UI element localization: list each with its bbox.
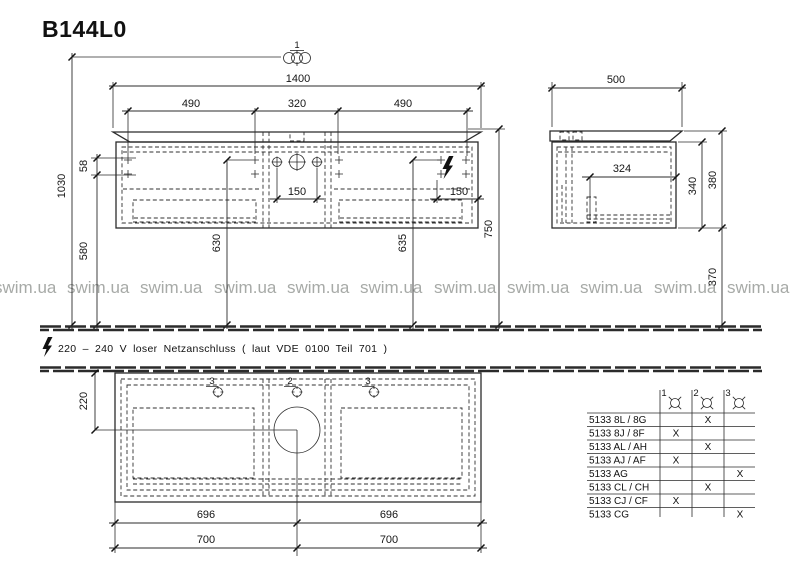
watermark: swim.ua	[214, 278, 277, 297]
callout-1: 1	[294, 40, 299, 51]
watermark-row: swim.ua swim.ua swim.ua swim.ua swim.ua …	[0, 278, 790, 297]
watermark: swim.ua	[580, 278, 643, 297]
dim-490-left: 490	[182, 98, 200, 110]
power-note: 220 – 240 V loser Netzanschluss ( laut V…	[43, 337, 388, 357]
dim-750: 750	[483, 220, 495, 238]
watermark: swim.ua	[0, 278, 57, 297]
countertop	[113, 132, 481, 142]
watermark: swim.ua	[434, 278, 497, 297]
mark: X	[673, 456, 680, 467]
dim-58: 58	[78, 160, 90, 172]
table-header: 1 2 3	[661, 388, 745, 409]
mark: X	[737, 469, 744, 480]
plan-outline	[115, 373, 481, 502]
watermark: swim.ua	[507, 278, 570, 297]
mark: X	[705, 442, 712, 453]
dim-700-right: 700	[380, 534, 398, 546]
dim-150-left: 150	[288, 186, 306, 198]
row-label: 5133 CG	[589, 510, 629, 521]
dim-150-right: 150	[450, 186, 468, 198]
dim-320: 320	[288, 98, 306, 110]
dim-635: 635	[397, 234, 409, 252]
dim-500: 500	[607, 74, 625, 86]
dim-696-right: 696	[380, 509, 398, 521]
row-label: 5133 AG	[589, 469, 628, 480]
col-1: 1	[661, 388, 666, 399]
power-note-text: 220 – 240 V loser Netzanschluss ( laut V…	[58, 343, 387, 355]
technical-drawing-page: swim.ua swim.ua swim.ua swim.ua swim.ua …	[0, 0, 800, 573]
mark: X	[737, 510, 744, 521]
row-label: 5133 CJ / CF	[589, 496, 648, 507]
callout-3-left: 3	[209, 376, 214, 387]
dim-1030: 1030	[56, 174, 68, 198]
wall-line-upper	[40, 327, 762, 331]
row-label: 5133 8L / 8G	[589, 415, 647, 426]
mark: X	[705, 415, 712, 426]
dim-630: 630	[211, 234, 223, 252]
watermark: swim.ua	[287, 278, 350, 297]
row-label: 5133 CL / CH	[589, 483, 649, 494]
lightning-icon	[443, 156, 454, 179]
mark: X	[673, 496, 680, 507]
watermark: swim.ua	[727, 278, 790, 297]
dim-220: 220	[78, 392, 90, 410]
callout-2: 2	[287, 376, 292, 387]
right-drawer-plan	[341, 408, 462, 478]
right-drawer	[339, 200, 462, 222]
dim-1400: 1400	[286, 73, 310, 85]
col-3: 3	[725, 388, 730, 399]
col-2: 2	[693, 388, 698, 399]
lightning-icon	[43, 337, 53, 357]
tap-holes	[272, 153, 323, 171]
dim-380: 380	[707, 171, 719, 189]
dim-696-left: 696	[197, 509, 215, 521]
left-drawer	[133, 200, 256, 222]
dim-490-right: 490	[394, 98, 412, 110]
callout-3-right: 3	[365, 376, 370, 387]
countertop-side	[550, 131, 682, 141]
dim-340: 340	[687, 177, 699, 195]
compatibility-table: 1 2 3 5133 8L / 8G X 5133 8J / 8F X 5133…	[587, 388, 755, 521]
center-cutout	[290, 132, 304, 141]
watermark: swim.ua	[67, 278, 130, 297]
row-label: 5133 AL / AH	[589, 442, 647, 453]
dim-700-left: 700	[197, 534, 215, 546]
wall-line-lower	[40, 368, 762, 372]
mark: X	[705, 483, 712, 494]
dim-580: 580	[78, 242, 90, 260]
dim-324: 324	[613, 163, 631, 175]
watermark: swim.ua	[140, 278, 203, 297]
table-rows: 5133 8L / 8G X 5133 8J / 8F X 5133 AL / …	[589, 415, 744, 521]
drawer-side	[587, 197, 596, 222]
left-drawer-plan	[133, 408, 254, 478]
tap-config-callout: 1	[72, 40, 311, 66]
plan-view: 3 2 3 220 696 696 700 700	[78, 370, 487, 557]
page-title: B144L0	[42, 16, 127, 42]
mark: X	[673, 429, 680, 440]
dim-370: 370	[707, 268, 719, 286]
row-label: 5133 AJ / AF	[589, 456, 646, 467]
watermark: swim.ua	[360, 278, 423, 297]
drawing-canvas: swim.ua swim.ua swim.ua swim.ua swim.ua …	[0, 0, 800, 573]
row-label: 5133 8J / 8F	[589, 429, 645, 440]
